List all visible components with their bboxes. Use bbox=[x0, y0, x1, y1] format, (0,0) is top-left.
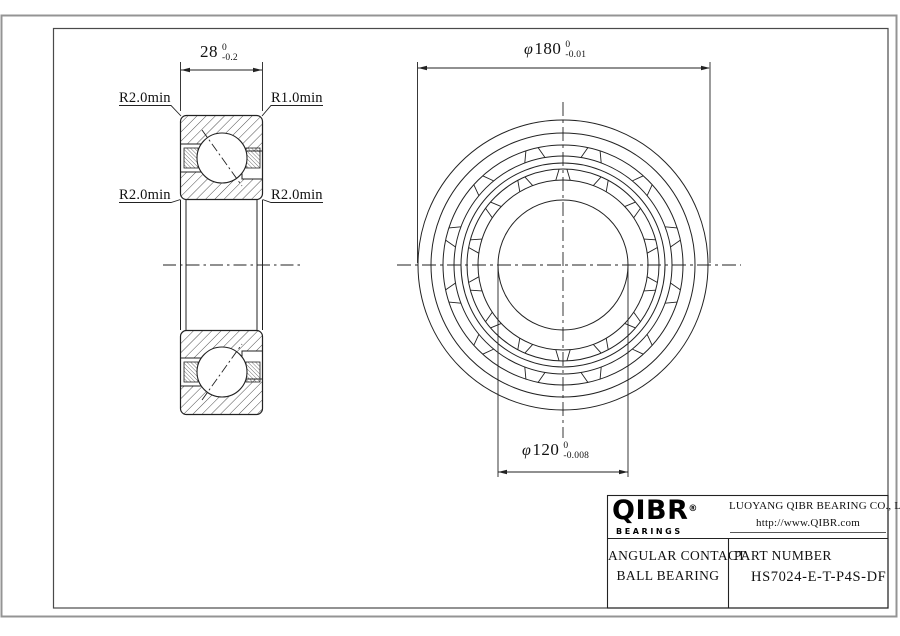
product-type-line1: ANGULAR CONTACT bbox=[608, 548, 728, 564]
diameter-symbol: φ bbox=[524, 41, 533, 58]
brand-logo-subtitle: BEARINGS bbox=[616, 527, 683, 536]
dimension-bore-tolerance: 0 -0.008 bbox=[563, 442, 589, 461]
front-view bbox=[397, 62, 741, 477]
radius-label-top-left: R2.0min bbox=[119, 90, 171, 107]
brand-logo: QIBR® bbox=[612, 497, 698, 524]
company-name: LUOYANG QIBR BEARING CO., LTD bbox=[729, 500, 887, 512]
radius-label-mid-left: R2.0min bbox=[119, 187, 171, 204]
arrow-od-left bbox=[418, 66, 427, 71]
arrow-bore-left bbox=[498, 470, 507, 475]
arrow-od-right bbox=[701, 66, 710, 71]
radius-label-top-right: R1.0min bbox=[271, 90, 323, 107]
dimension-od-tolerance: 0 -0.01 bbox=[565, 41, 586, 60]
arrow-left bbox=[181, 68, 190, 73]
engineering-drawing: 28 0 -0.2 R2.0min R1.0min R2.0min R2.0mi… bbox=[0, 0, 900, 636]
dimension-width-value: 28 bbox=[200, 44, 218, 60]
arrow-right bbox=[253, 68, 262, 73]
cross-section-view bbox=[119, 62, 323, 415]
dimension-bore-value: φ120 bbox=[522, 442, 559, 459]
cage-block-left-lower bbox=[184, 362, 198, 382]
diameter-symbol-bore: φ bbox=[522, 442, 531, 459]
dimension-width-tolerance: 0 -0.2 bbox=[222, 44, 238, 63]
registered-trademark-symbol: ® bbox=[688, 504, 698, 514]
product-type-line2: BALL BEARING bbox=[608, 568, 728, 584]
width-dimension-lines bbox=[181, 62, 263, 111]
dimension-od-value: φ180 bbox=[524, 41, 561, 58]
cage-block-left bbox=[184, 148, 198, 168]
dimension-outer-diameter: φ180 0 -0.01 bbox=[524, 41, 586, 60]
part-number-value: HS7024-E-T-P4S-DF bbox=[751, 569, 886, 586]
company-website: http://www.QIBR.com bbox=[729, 517, 887, 529]
part-number-label: PART NUMBER bbox=[734, 548, 832, 564]
arrow-bore-right bbox=[619, 470, 628, 475]
dimension-width: 28 0 -0.2 bbox=[200, 44, 238, 63]
dimension-bore: φ120 0 -0.008 bbox=[522, 442, 589, 461]
cage-block-right-lower bbox=[246, 362, 260, 382]
radius-label-mid-right: R2.0min bbox=[271, 187, 323, 204]
cage-block-right bbox=[246, 148, 260, 168]
